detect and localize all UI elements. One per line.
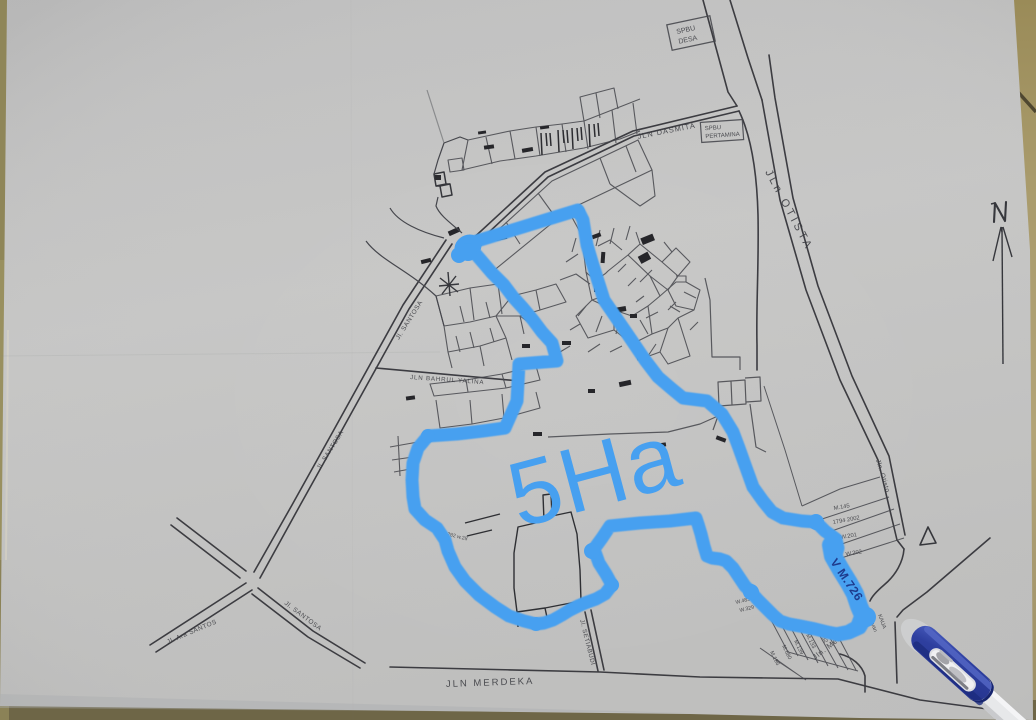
svg-text:SPBU: SPBU: [705, 125, 722, 132]
